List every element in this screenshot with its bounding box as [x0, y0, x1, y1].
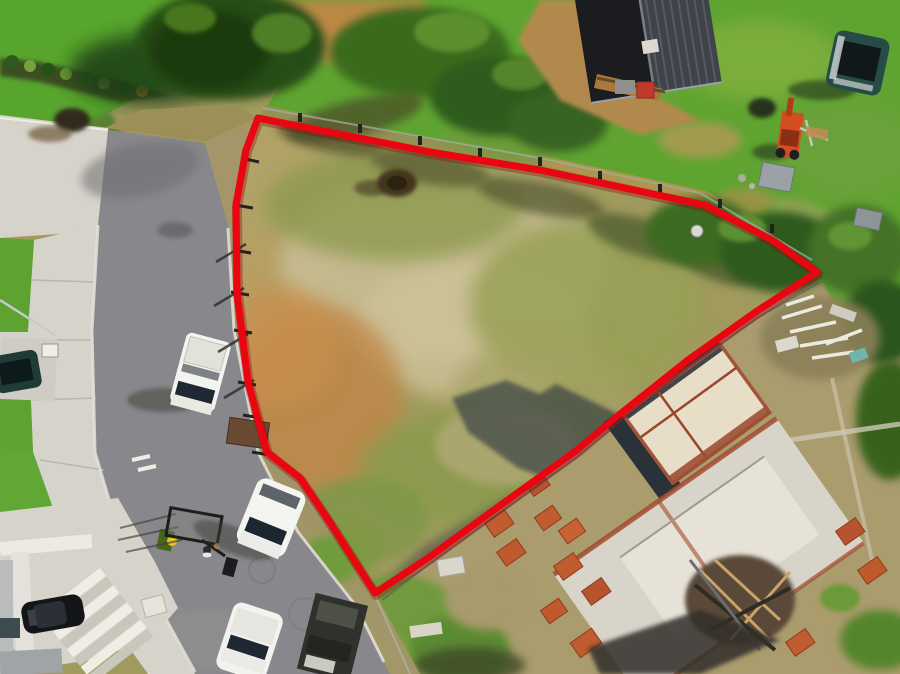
rock [749, 183, 755, 189]
round-lid [691, 225, 703, 237]
aerial-photo [0, 0, 900, 674]
grey-sheet [758, 162, 795, 192]
timber-debris [760, 296, 880, 380]
grey-box [615, 80, 635, 94]
chimney [641, 39, 659, 54]
rock [738, 174, 746, 182]
road-stain [157, 222, 193, 238]
sign [42, 344, 58, 357]
red-crate [637, 82, 654, 98]
weeds [820, 584, 860, 612]
